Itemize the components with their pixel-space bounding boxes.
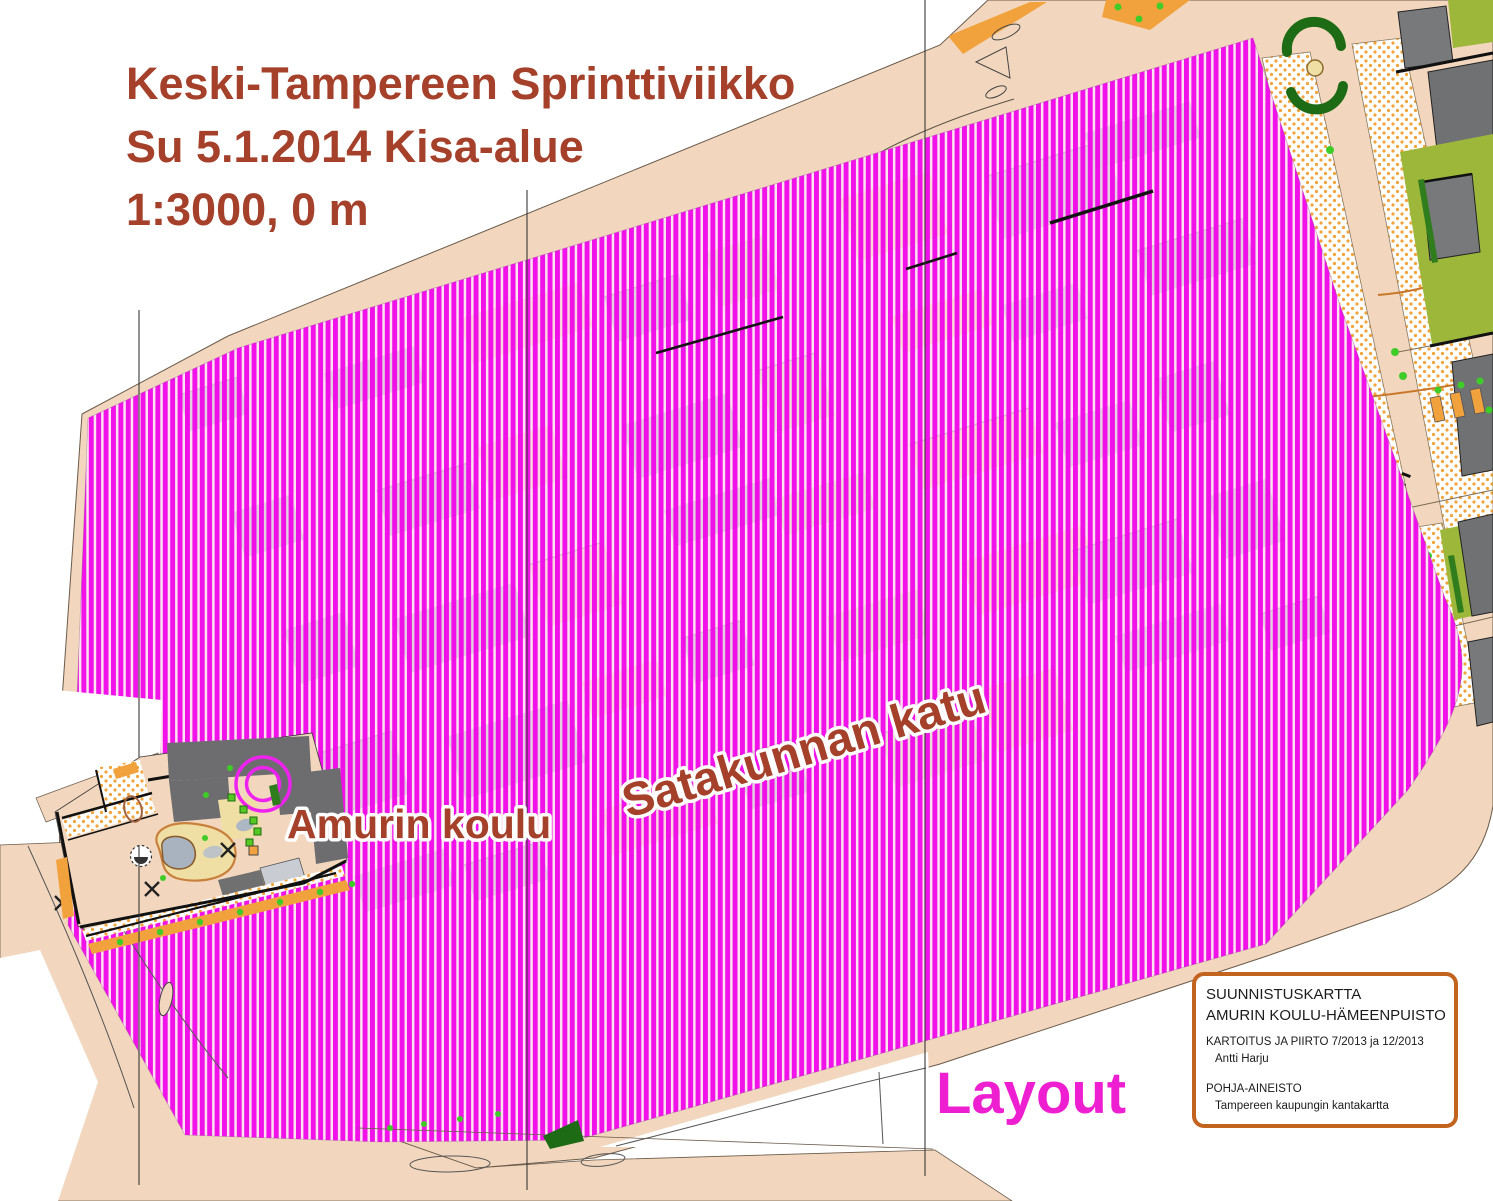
legend-base-heading: POHJA-AINEISTO <box>1206 1082 1446 1097</box>
legend-title-line-2: AMURIN KOULU-HÄMEENPUISTO <box>1206 1005 1446 1026</box>
title-line-2: Su 5.1.2014 Kisa-alue <box>126 115 795 178</box>
title-line-1: Keski-Tampereen Sprinttiviikko <box>126 52 795 115</box>
orienteering-map-page: Amurin koulu Satakunnan katu Keski-Tampe… <box>0 0 1493 1201</box>
fountain-icon <box>1307 60 1323 76</box>
layout-label: Layout <box>936 1060 1126 1127</box>
legend-base-source: Tampereen kaupungin kantakartta <box>1215 1099 1446 1114</box>
legend-survey-heading: KARTOITUS JA PIIRTO 7/2013 ja 12/2013 <box>1206 1035 1446 1050</box>
legend-box: SUUNNISTUSKARTTA AMURIN KOULU-HÄMEENPUIS… <box>1192 972 1458 1128</box>
title-line-3: 1:3000, 0 m <box>126 178 795 241</box>
legend-surveyor: Antti Harju <box>1215 1052 1446 1067</box>
title-block: Keski-Tampereen Sprinttiviikko Su 5.1.20… <box>126 52 795 241</box>
school-label: Amurin koulu <box>287 801 551 847</box>
legend-title-line-1: SUUNNISTUSKARTTA <box>1206 984 1446 1005</box>
